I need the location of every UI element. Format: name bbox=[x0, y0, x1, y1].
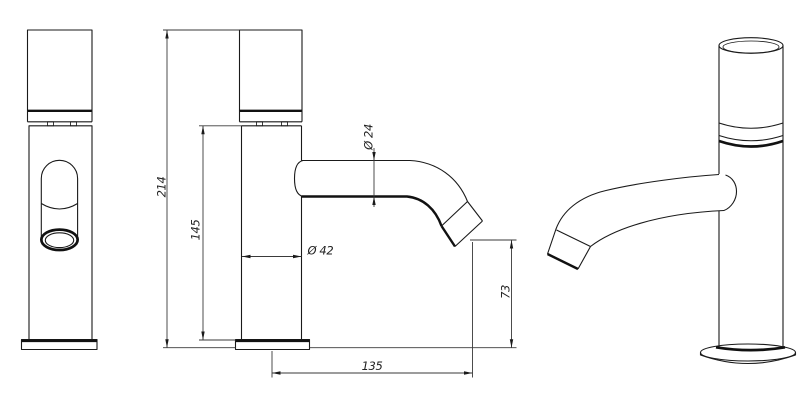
spout-joint-arc bbox=[41, 204, 77, 210]
dim-outlet-height-label: 73 bbox=[499, 285, 513, 299]
dim-body-diameter: Ø 42 bbox=[242, 244, 333, 259]
handle-top-inner-rim bbox=[723, 41, 779, 53]
body-sides bbox=[719, 46, 783, 348]
collar-tab bbox=[71, 122, 77, 126]
drawing-sheet: 214 145 Ø 24 Ø 42 73 135 bbox=[0, 0, 800, 409]
side-view bbox=[236, 30, 483, 350]
dim-lines bbox=[310, 240, 517, 348]
dim-spout-diameter: Ø 24 bbox=[362, 124, 376, 207]
handle-outline bbox=[240, 30, 303, 111]
arrowhead bbox=[372, 152, 375, 161]
aerator-under-edge bbox=[442, 226, 456, 247]
collar-tab bbox=[257, 122, 263, 126]
handle-outline bbox=[28, 30, 93, 111]
body-outline bbox=[242, 126, 302, 340]
base-bottom bbox=[701, 353, 796, 364]
arrowhead bbox=[293, 255, 302, 258]
spout-front-outline bbox=[41, 160, 77, 240]
dim-lines bbox=[199, 126, 242, 340]
arrowhead bbox=[464, 371, 473, 374]
spout-bottom-edge bbox=[302, 197, 442, 227]
body-base-junction bbox=[716, 347, 785, 350]
dim-body-diameter-label: Ø 42 bbox=[307, 244, 334, 258]
dim-lines bbox=[163, 30, 240, 348]
arrowhead bbox=[372, 197, 375, 206]
collar-tab bbox=[282, 122, 288, 126]
arrowhead bbox=[201, 332, 204, 341]
dim-spout-reach-label: 135 bbox=[362, 359, 383, 373]
dim-overall-height: 214 bbox=[155, 30, 240, 348]
perspective-view bbox=[548, 38, 796, 364]
dim-lines bbox=[272, 242, 473, 378]
handle-bottom-arc bbox=[719, 123, 783, 128]
collar-arc bbox=[719, 136, 783, 141]
spout-top-edge bbox=[548, 175, 720, 255]
dim-body-height-label: 145 bbox=[189, 220, 203, 241]
arrowhead bbox=[201, 126, 204, 135]
aerator-cap bbox=[557, 230, 591, 269]
arrowhead bbox=[242, 255, 251, 258]
arrowhead bbox=[510, 339, 513, 348]
spout-back-cap bbox=[295, 161, 304, 197]
dim-spout-reach: 135 bbox=[272, 242, 473, 378]
faucet-technical-drawing: 214 145 Ø 24 Ø 42 73 135 bbox=[0, 0, 800, 409]
dim-overall-height-label: 214 bbox=[155, 177, 169, 198]
dim-outlet-height: 73 bbox=[310, 240, 517, 348]
dim-body-height: 145 bbox=[189, 126, 242, 340]
arrowhead bbox=[165, 339, 168, 348]
collar-band bbox=[28, 111, 93, 122]
arrowhead bbox=[165, 30, 168, 39]
arrowhead bbox=[510, 240, 513, 249]
outlet-inner-rim bbox=[45, 233, 73, 248]
collar-tab bbox=[48, 122, 54, 126]
arrowhead bbox=[272, 371, 281, 374]
collar-ring bbox=[719, 141, 783, 147]
spout-bottom-edge bbox=[591, 211, 725, 247]
collar-band bbox=[240, 111, 303, 122]
aerator-tip-face bbox=[548, 254, 579, 269]
dim-spout-diameter-label: Ø 24 bbox=[362, 124, 376, 151]
front-view bbox=[22, 30, 98, 350]
spout-back-cap bbox=[724, 175, 737, 211]
